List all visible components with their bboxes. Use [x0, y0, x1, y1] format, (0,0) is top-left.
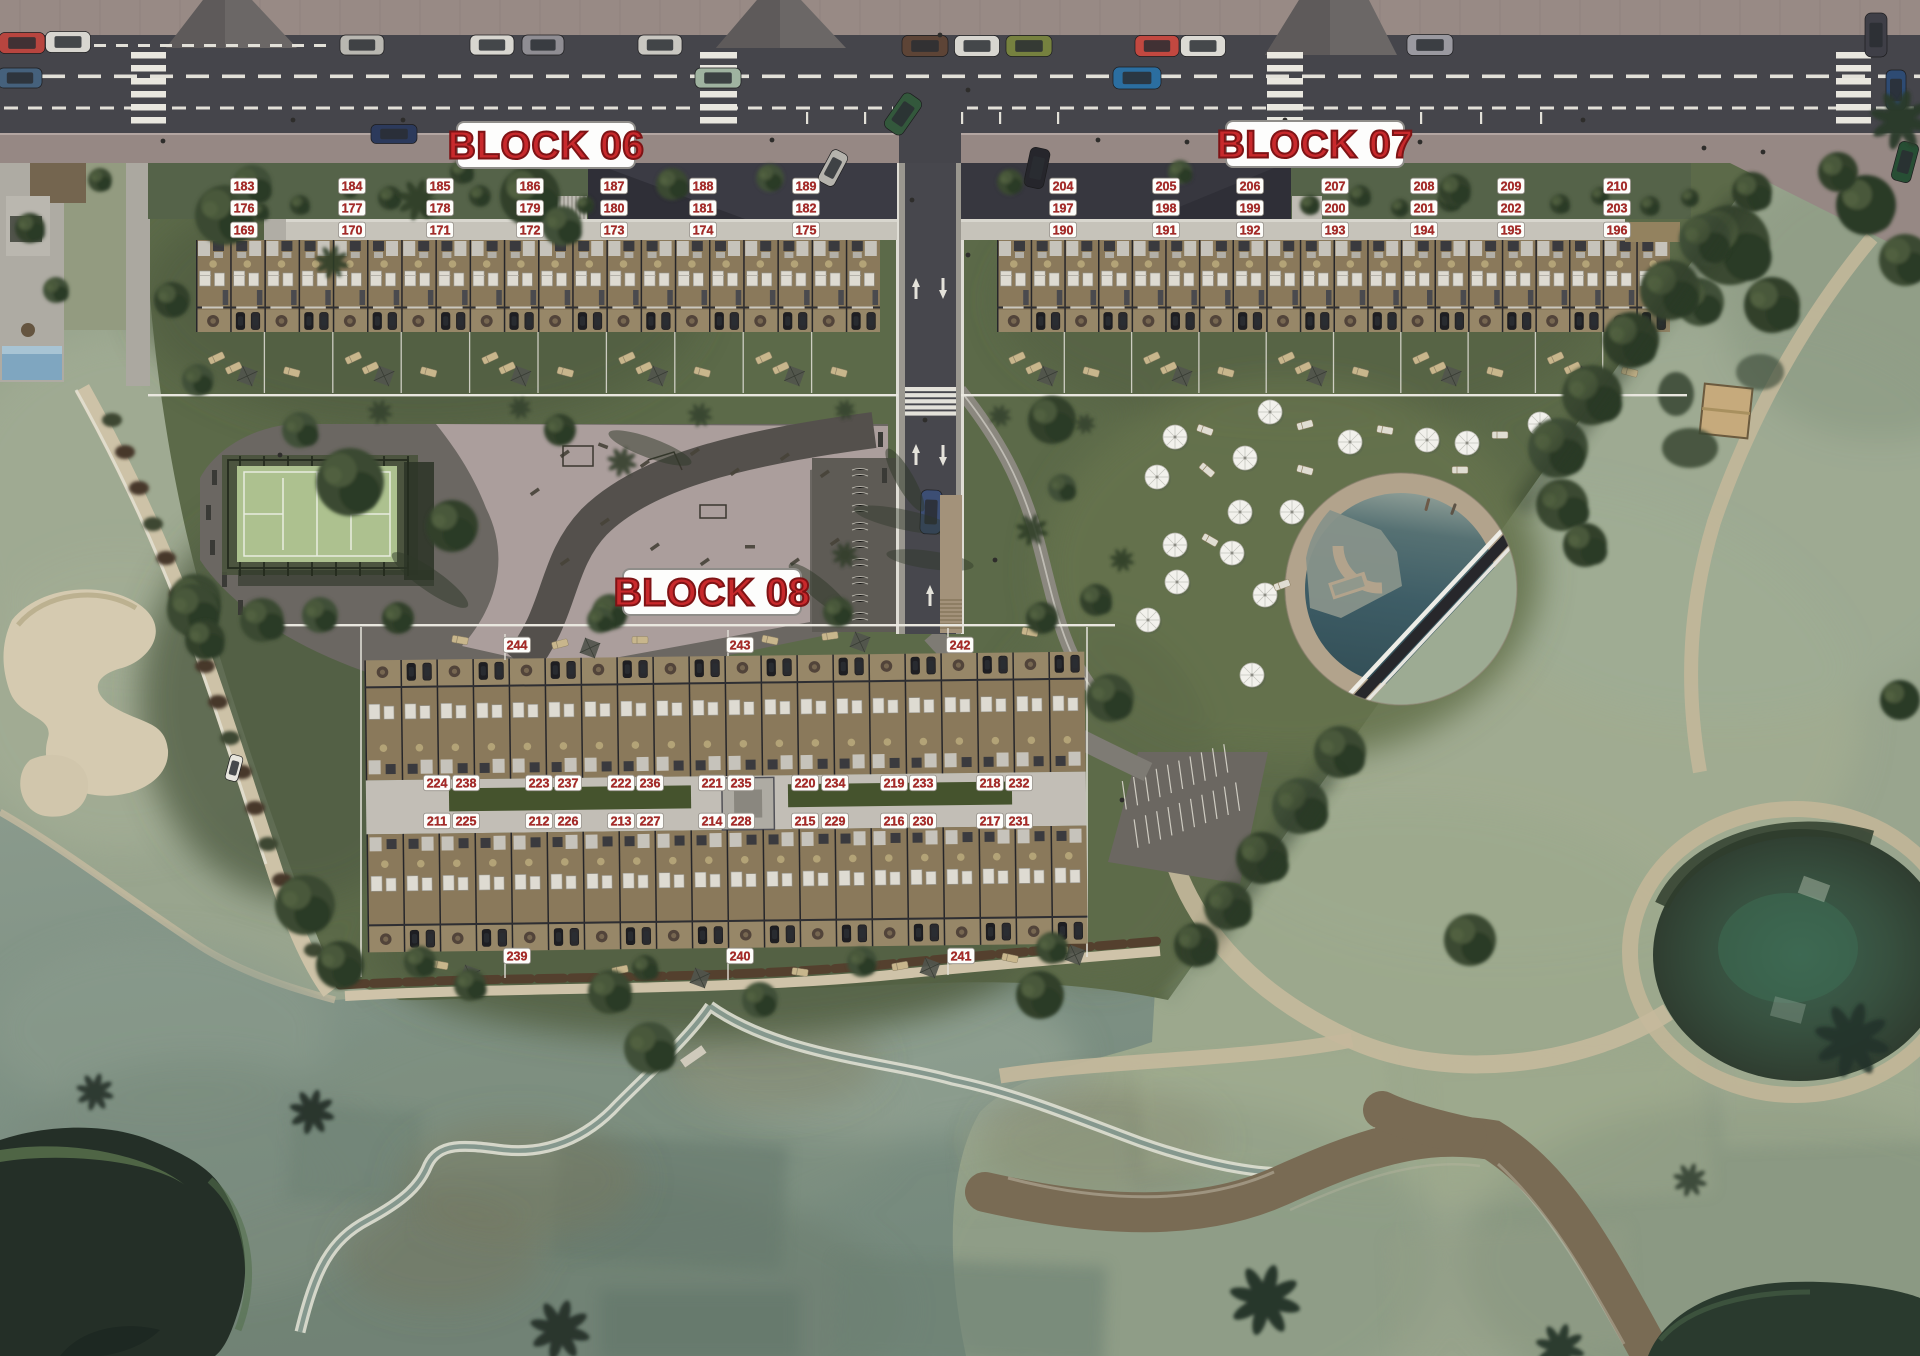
svg-text:225: 225: [456, 814, 477, 828]
svg-text:194: 194: [1414, 223, 1435, 237]
svg-text:182: 182: [796, 201, 817, 215]
svg-text:204: 204: [1053, 179, 1074, 193]
svg-text:205: 205: [1156, 179, 1177, 193]
svg-text:171: 171: [430, 223, 451, 237]
svg-text:170: 170: [342, 223, 363, 237]
svg-text:235: 235: [731, 776, 752, 790]
svg-text:214: 214: [702, 814, 723, 828]
svg-text:180: 180: [604, 201, 625, 215]
svg-text:174: 174: [693, 223, 714, 237]
svg-text:203: 203: [1607, 201, 1628, 215]
svg-text:207: 207: [1325, 179, 1346, 193]
svg-text:212: 212: [529, 814, 550, 828]
svg-text:193: 193: [1325, 223, 1346, 237]
svg-text:226: 226: [558, 814, 579, 828]
svg-text:195: 195: [1501, 223, 1522, 237]
svg-text:219: 219: [884, 776, 905, 790]
svg-text:236: 236: [640, 776, 661, 790]
svg-text:232: 232: [1009, 776, 1030, 790]
svg-text:239: 239: [507, 949, 528, 963]
svg-text:218: 218: [980, 776, 1001, 790]
svg-text:197: 197: [1053, 201, 1074, 215]
svg-text:BLOCK 06: BLOCK 06: [448, 125, 645, 168]
svg-text:223: 223: [529, 776, 550, 790]
svg-text:176: 176: [234, 201, 255, 215]
svg-text:228: 228: [731, 814, 752, 828]
svg-text:230: 230: [913, 814, 934, 828]
svg-text:242: 242: [950, 638, 971, 652]
svg-text:229: 229: [825, 814, 846, 828]
svg-text:238: 238: [456, 776, 477, 790]
svg-text:241: 241: [951, 949, 972, 963]
svg-text:209: 209: [1501, 179, 1522, 193]
svg-text:237: 237: [558, 776, 579, 790]
svg-text:231: 231: [1009, 814, 1030, 828]
svg-text:175: 175: [796, 223, 817, 237]
svg-text:201: 201: [1414, 201, 1435, 215]
svg-text:213: 213: [611, 814, 632, 828]
svg-text:BLOCK 07: BLOCK 07: [1217, 124, 1414, 167]
svg-text:210: 210: [1607, 179, 1628, 193]
svg-text:169: 169: [234, 223, 255, 237]
svg-text:184: 184: [342, 179, 363, 193]
svg-text:224: 224: [427, 776, 448, 790]
svg-text:189: 189: [796, 179, 817, 193]
svg-text:244: 244: [507, 638, 528, 652]
svg-text:222: 222: [611, 776, 632, 790]
svg-text:173: 173: [604, 223, 625, 237]
svg-text:202: 202: [1501, 201, 1522, 215]
svg-text:190: 190: [1053, 223, 1074, 237]
svg-text:188: 188: [693, 179, 714, 193]
svg-text:177: 177: [342, 201, 363, 215]
svg-text:179: 179: [520, 201, 541, 215]
svg-text:181: 181: [693, 201, 714, 215]
svg-text:220: 220: [795, 776, 816, 790]
svg-text:183: 183: [234, 179, 255, 193]
svg-text:200: 200: [1325, 201, 1346, 215]
svg-text:199: 199: [1240, 201, 1261, 215]
svg-text:187: 187: [604, 179, 625, 193]
svg-text:211: 211: [427, 814, 447, 828]
svg-text:172: 172: [520, 223, 541, 237]
svg-text:215: 215: [795, 814, 816, 828]
svg-text:198: 198: [1156, 201, 1177, 215]
svg-text:BLOCK 08: BLOCK 08: [614, 572, 811, 615]
svg-text:186: 186: [520, 179, 541, 193]
svg-text:217: 217: [980, 814, 1001, 828]
svg-text:208: 208: [1414, 179, 1435, 193]
svg-text:221: 221: [702, 776, 723, 790]
svg-text:234: 234: [825, 776, 846, 790]
svg-text:178: 178: [430, 201, 451, 215]
svg-text:216: 216: [884, 814, 905, 828]
svg-text:227: 227: [640, 814, 661, 828]
svg-text:191: 191: [1156, 223, 1177, 237]
svg-text:185: 185: [430, 179, 451, 193]
svg-text:243: 243: [730, 638, 751, 652]
svg-text:192: 192: [1240, 223, 1261, 237]
svg-text:233: 233: [913, 776, 934, 790]
svg-text:240: 240: [730, 949, 751, 963]
svg-text:206: 206: [1240, 179, 1261, 193]
svg-text:196: 196: [1607, 223, 1628, 237]
